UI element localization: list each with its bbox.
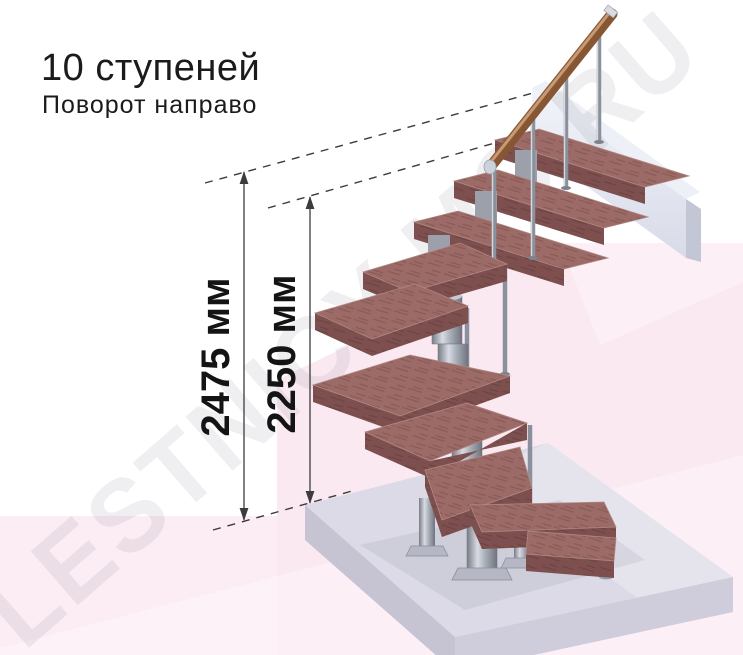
dimension-label-2250: 2250 мм — [260, 274, 304, 433]
beam-end-face — [686, 199, 701, 262]
page-subtitle: Поворот направо — [42, 91, 257, 119]
stair-diagram: LESTNICY-MO.RU — [0, 0, 743, 655]
column-base-plate — [452, 568, 512, 580]
dimension-label-2475: 2475 мм — [194, 277, 238, 436]
step-2-top — [470, 502, 616, 532]
page-title: 10 ступеней — [41, 47, 260, 89]
handrail-end-cap — [484, 160, 496, 174]
support-leg-1-plate — [406, 546, 448, 556]
stair-scene: LESTNICY-MO.RU — [0, 0, 743, 655]
